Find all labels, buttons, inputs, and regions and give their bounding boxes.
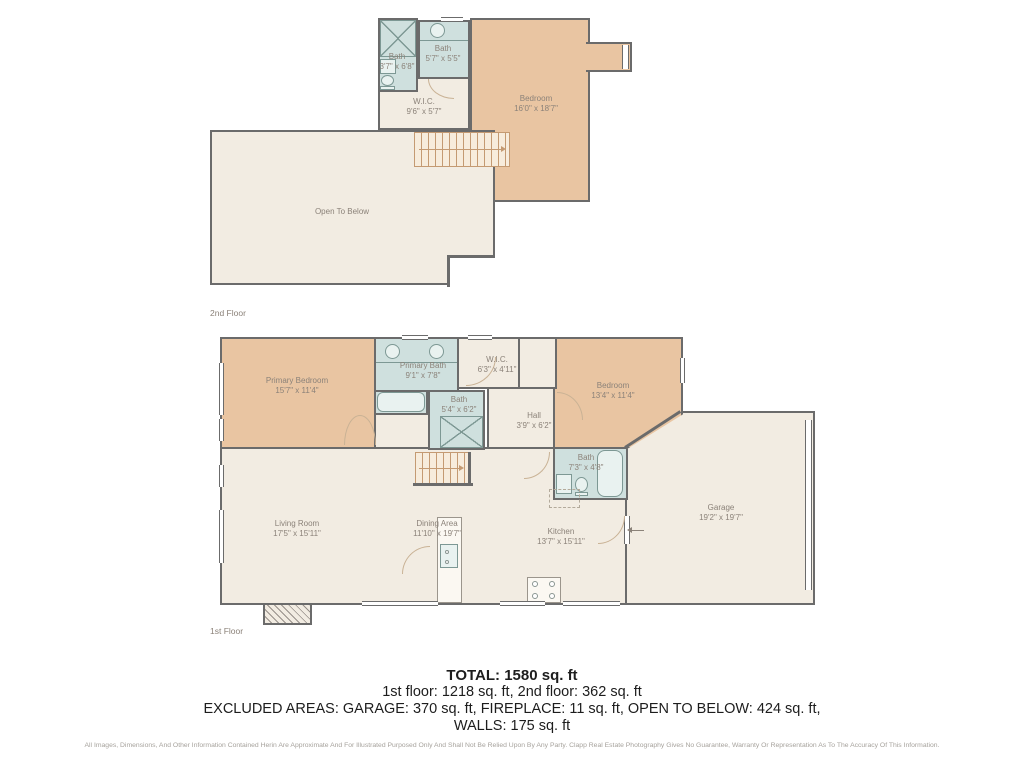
total-area-text: TOTAL: 1580 sq. ft — [0, 667, 1024, 684]
faucet-dot — [445, 560, 449, 564]
fireplace-icon — [263, 603, 312, 625]
room-label-dining-area: Dining Area11'10" x 19'7" — [413, 519, 461, 539]
bathtub-icon — [377, 392, 425, 412]
room-closet-1f — [518, 337, 557, 389]
excluded-areas-text: EXCLUDED AREAS: GARAGE: 370 sq. ft, FIRE… — [0, 701, 1024, 718]
room-label-bedroom-1f: Bedroom13'4" x 11'4" — [591, 381, 634, 401]
room-label-primary-bath: Primary Bath9'1" x 7'8" — [400, 361, 446, 381]
room-label-bath2-1f: Bath7'3" x 4'8" — [569, 453, 604, 473]
disclaimer-text: All Images, Dimensions, And Other Inform… — [0, 742, 1024, 749]
window — [219, 465, 224, 487]
wall-segment — [468, 452, 471, 486]
faucet-dot — [445, 550, 449, 554]
window — [680, 358, 685, 383]
pantry-outline — [549, 489, 580, 508]
floor-areas-text: 1st floor: 1218 sq. ft, 2nd floor: 362 s… — [0, 684, 1024, 701]
window — [219, 510, 224, 563]
room-label-primary-bedroom: Primary Bedroom15'7" x 11'4" — [266, 376, 328, 396]
kitchen-sink-icon — [440, 544, 458, 568]
window — [219, 419, 224, 441]
window — [468, 335, 492, 340]
entry-arrow-icon — [627, 527, 632, 533]
room-label-garage: Garage19'2" x 19'7" — [699, 503, 743, 523]
floor-plan-page: Bath3'7" x 6'8" Bath5'7" x 5'5" W.I.C.9'… — [0, 0, 1024, 768]
stair-arrow-icon — [459, 465, 464, 471]
room-label-living-room: Living Room17'5" x 15'11" — [273, 519, 321, 539]
burner-icon — [532, 593, 538, 599]
area-summary: TOTAL: 1580 sq. ft 1st floor: 1218 sq. f… — [0, 667, 1024, 735]
walls-area-text: WALLS: 175 sq. ft — [0, 718, 1024, 735]
shower-icon — [440, 416, 483, 448]
window — [563, 601, 620, 606]
burner-icon — [549, 581, 555, 587]
room-label-kitchen: Kitchen13'7" x 15'11" — [537, 527, 585, 547]
staircase-icon — [415, 452, 469, 484]
burner-icon — [532, 581, 538, 587]
room-label-bath-small: Bath5'4" x 6'2" — [442, 395, 477, 415]
window — [500, 601, 545, 606]
garage-door — [805, 420, 812, 590]
first-floor-plan: Primary Bedroom15'7" x 11'4" Primary Bat… — [0, 0, 1024, 768]
stair-direction-line — [419, 468, 459, 469]
sink-icon — [385, 344, 400, 359]
room-label-wic-1f: W.I.C.6'3" x 4'11" — [478, 355, 517, 375]
window — [402, 335, 428, 340]
floor-label-1st: 1st Floor — [210, 626, 243, 636]
window — [219, 363, 224, 415]
burner-icon — [549, 593, 555, 599]
sink-icon — [429, 344, 444, 359]
room-label-hall: Hall3'9" x 6'2" — [517, 411, 552, 431]
window — [362, 601, 438, 606]
entry-arrow-line — [632, 530, 644, 531]
wall-segment — [413, 483, 473, 486]
